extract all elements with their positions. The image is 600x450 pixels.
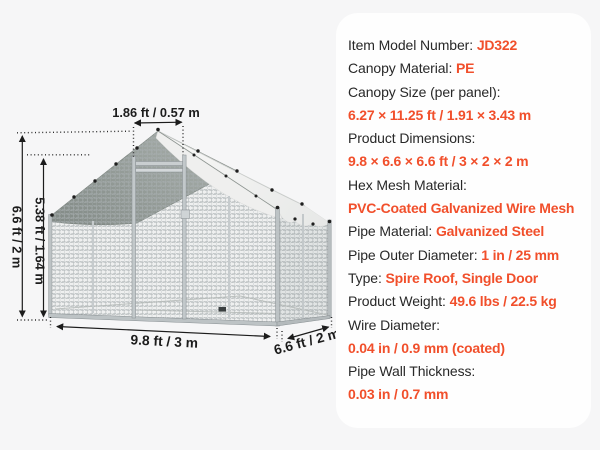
spec-value: PVC-Coated Galvanized Wire Mesh (348, 200, 574, 216)
spec-value: Spire Roof, Single Door (386, 270, 539, 286)
spec-line: 6.27 × 11.25 ft / 1.91 × 3.43 m (348, 104, 583, 127)
spec-line: Hex Mesh Material: (348, 174, 583, 197)
spec-line: Pipe Wall Thickness: (348, 360, 583, 383)
chicken-run-illustration (49, 128, 332, 326)
spec-line: PVC-Coated Galvanized Wire Mesh (348, 197, 583, 220)
door-top-bar (136, 162, 183, 166)
chicken-run-diagram: 1.86 ft / 0.57 m 6.6 ft / 2 m 5.38 ft / … (0, 0, 340, 450)
door-left-pole (132, 156, 136, 318)
spec-value: 0.03 in / 0.7 mm (348, 386, 448, 402)
spec-label: Product Dimensions: (348, 130, 475, 146)
spec-line: Pipe Outer Diameter: 1 in / 25 mm (348, 244, 583, 267)
spec-label: Pipe Outer Diameter: (348, 247, 481, 263)
spec-line: Canopy Size (per panel): (348, 81, 583, 104)
spec-label: Type: (348, 270, 386, 286)
spec-value: 1 in / 25 mm (481, 247, 559, 263)
spec-line: Wire Diameter: (348, 314, 583, 337)
dim-door-width-label: 1.86 ft / 0.57 m (112, 105, 200, 120)
spec-label: Wire Diameter: (348, 317, 440, 333)
spec-value: 9.8 × 6.6 × 6.6 ft / 3 × 2 × 2 m (348, 153, 528, 169)
dim-width-label: 9.8 ft / 3 m (130, 332, 198, 350)
spec-line: 9.8 × 6.6 × 6.6 ft / 3 × 2 × 2 m (348, 150, 583, 173)
spec-value: JD322 (477, 37, 517, 53)
spec-line: Pipe Material: Galvanized Steel (348, 220, 583, 243)
spec-label: Hex Mesh Material: (348, 177, 467, 193)
spec-line: 0.03 in / 0.7 mm (348, 383, 583, 406)
spec-value: 0.04 in / 0.9 mm (coated) (348, 340, 505, 356)
spec-label: Canopy Material: (348, 60, 456, 76)
dim-depth-label: 6.6 ft / 2 m (272, 326, 340, 358)
spec-value: PE (456, 60, 474, 76)
spec-line: Item Model Number: JD322 (348, 34, 583, 57)
product-spec-image: 1.86 ft / 0.57 m 6.6 ft / 2 m 5.38 ft / … (0, 0, 600, 450)
spec-value: 6.27 × 11.25 ft / 1.91 × 3.43 m (348, 107, 531, 123)
spec-label: Item Model Number: (348, 37, 477, 53)
spec-line: 0.04 in / 0.9 mm (coated) (348, 337, 583, 360)
spec-label: Product Weight: (348, 293, 450, 309)
spec-list: Item Model Number: JD322Canopy Material:… (348, 34, 583, 407)
spec-value: Galvanized Steel (436, 223, 544, 239)
spec-label: Pipe Material: (348, 223, 436, 239)
spec-label: Canopy Size (per panel): (348, 84, 500, 100)
rail-clamp (219, 307, 227, 312)
door-latch (181, 210, 190, 219)
spec-line: Canopy Material: PE (348, 57, 583, 80)
spec-value: 49.6 lbs / 22.5 kg (450, 293, 557, 309)
spec-line: Product Dimensions: (348, 127, 583, 150)
spec-line: Type: Spire Roof, Single Door (348, 267, 583, 290)
door-top-bar-2 (136, 169, 183, 173)
dim-door-height-label: 5.38 ft / 1.64 m (33, 197, 48, 285)
door-right-pole (183, 155, 187, 319)
spec-line: Product Weight: 49.6 lbs / 22.5 kg (348, 290, 583, 313)
spec-card: Item Model Number: JD322Canopy Material:… (336, 13, 591, 428)
front-mesh-wall (50, 131, 277, 325)
spec-label: Pipe Wall Thickness: (348, 363, 475, 379)
